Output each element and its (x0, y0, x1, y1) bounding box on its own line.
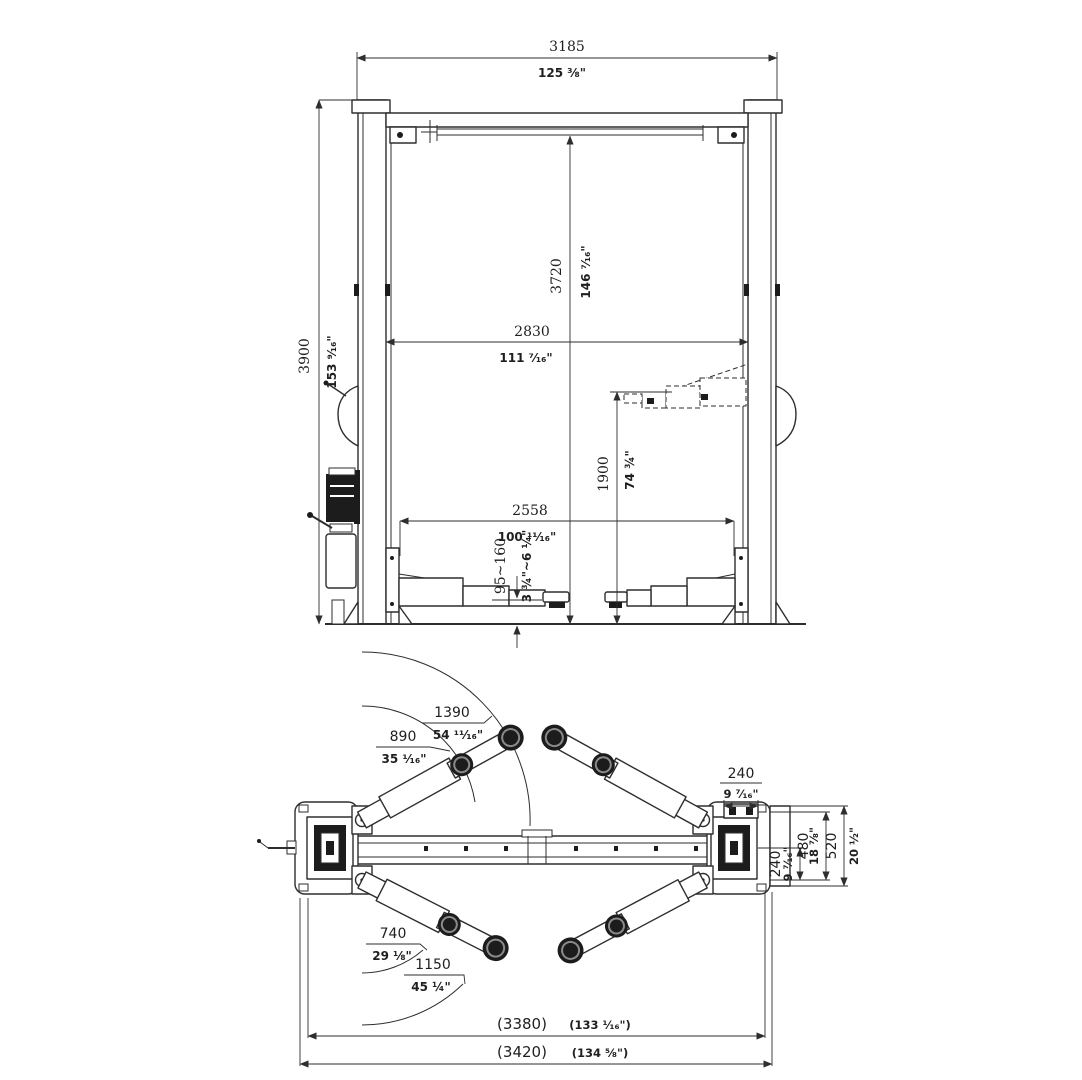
dim-240-side-in: 9 ⁷⁄₁₆" (781, 846, 795, 881)
front-view: 3185 125 ⅜" 3900 153 ⁹⁄₁₆" 3720 146 ⁷⁄₁₆… (297, 39, 806, 648)
power-unit (307, 468, 360, 588)
beam-joint-plate (522, 830, 552, 837)
dim-3185-in: 125 ⅜" (538, 66, 586, 80)
dim-3380-in: (133 ¹⁄₁₆") (569, 1018, 631, 1032)
anchor-bolt (729, 807, 736, 815)
dim-3900-in: 153 ⁹⁄₁₆" (325, 335, 339, 388)
beam-bolt (504, 846, 508, 851)
dim-overall-inner: (3380) (133 ¹⁄₁₆") (308, 892, 765, 1038)
carriage-pin (390, 556, 394, 560)
drawing-page: 3185 125 ⅜" 3900 153 ⁹⁄₁₆" 3720 146 ⁷⁄₁₆… (0, 0, 1082, 1080)
dim-3720-in: 146 ⁷⁄₁₆" (579, 245, 593, 298)
beam-bolt (654, 846, 658, 851)
right-column-cap (744, 100, 782, 113)
dim-3420-mm: (3420) (497, 1043, 547, 1061)
dim-520-mm: 520 (824, 833, 840, 860)
base-wedge (722, 606, 735, 624)
base-wedge (344, 602, 358, 624)
dim-95-160-in: 3 ¾"~6 ¼" (520, 530, 534, 602)
dim-1150-in: 45 ¼" (411, 980, 451, 994)
lock-cover-left (338, 386, 358, 446)
arm-pad (543, 592, 569, 602)
dim-clearance-height: 3720 146 ⁷⁄₁₆" (549, 136, 593, 624)
oil-tank (326, 534, 356, 588)
base-wedge (399, 606, 412, 624)
motor (326, 474, 358, 522)
joint-bolt (775, 284, 780, 296)
handle-knob (307, 512, 313, 518)
dim-240-top-in: 9 ⁷⁄₁₆" (723, 787, 758, 801)
motor-cap (329, 468, 355, 475)
plan-view: 1390 54 ¹¹⁄₁₆" 890 35 ¹⁄₁₆" 740 29 ⅛" 11… (257, 652, 861, 1066)
joint-bolt (744, 284, 749, 296)
dim-890-in: 35 ¹⁄₁₆" (382, 752, 427, 766)
top-beam (386, 113, 748, 127)
dim-overall-outer: (3420) (134 ⅝") (300, 892, 772, 1066)
dim-520-in: 20 ½" (847, 827, 861, 865)
dim-drive-through: 2558 100 ¹¹⁄₁₆" (400, 503, 734, 556)
gusset-bolt-left (397, 132, 403, 138)
arm-pad-foot (549, 602, 565, 608)
joint-bolt (354, 284, 359, 296)
dim-480-in: 18 ⅞" (807, 827, 821, 865)
right-arm-stowed (605, 574, 735, 608)
carriage-pin (739, 602, 743, 606)
dim-3185-mm: 3185 (549, 39, 585, 55)
dim-2830-mm: 2830 (514, 324, 550, 340)
left-column (358, 100, 386, 624)
dim-1390-mm: 1390 (434, 705, 470, 721)
left-column-cap (352, 100, 390, 113)
gusset-bolt-right (731, 132, 737, 138)
callout-rear-arm-extended: 1150 45 ¼" (404, 957, 465, 994)
raised-arm-phantom (624, 364, 748, 408)
dim-overall-width: 3185 125 ⅜" (357, 39, 777, 100)
lock-cover-right (776, 386, 796, 446)
dim-2830-in: 111 ⁷⁄₁₆" (499, 351, 552, 365)
dim-3420-in: (134 ⅝") (572, 1046, 628, 1060)
dim-3720-mm: 3720 (549, 258, 565, 294)
right-column (748, 100, 776, 624)
carriage-pin (390, 602, 394, 606)
beam-bolt (464, 846, 468, 851)
arm-rear-right (553, 869, 709, 968)
left-base-plate (257, 802, 372, 894)
dim-3380-mm: (3380) (497, 1015, 547, 1033)
overhead-safety-bar (437, 129, 703, 135)
dim-890-mm: 890 (390, 729, 417, 745)
beam-bolt (694, 846, 698, 851)
joint-bolt (385, 284, 390, 296)
dim-1150-mm: 1150 (415, 957, 451, 973)
arm-front-right (537, 720, 710, 831)
carriage-pin (739, 556, 743, 560)
valve-block (330, 524, 352, 532)
arm-pad (605, 592, 627, 602)
crossbeam (345, 830, 740, 864)
arm-pad-foot (609, 602, 622, 608)
base-wedge (776, 602, 790, 624)
dim-between-columns: 2830 111 ⁷⁄₁₆" (386, 324, 748, 365)
dim-3900-mm: 3900 (297, 338, 313, 374)
dim-95-160-mm: 95~160 (493, 538, 509, 594)
callout-front-arm-extended: 1390 54 ¹¹⁄₁₆" (422, 705, 492, 742)
anchor-bolt (746, 807, 753, 815)
dim-740-in: 29 ⅛" (372, 949, 412, 963)
dim-1390-in: 54 ¹¹⁄₁₆" (433, 728, 483, 742)
dim-1900-in: 74 ¾" (623, 450, 637, 490)
two-post-lift-technical-drawing: 3185 125 ⅜" 3900 153 ⁹⁄₁₆" 3720 146 ⁷⁄₁₆… (0, 0, 1082, 1080)
dim-pad-height: 95~160 3 ¾"~6 ¼" (492, 530, 542, 648)
beam-bolt (424, 846, 428, 851)
dim-740-mm: 740 (380, 926, 407, 942)
floor-box (332, 600, 344, 624)
beam-bolt (574, 846, 578, 851)
dim-2558-mm: 2558 (512, 503, 548, 519)
dim-240-top-mm: 240 (728, 766, 755, 782)
phantom-pad (624, 394, 642, 403)
dim-1900-mm: 1900 (596, 456, 612, 492)
left-arm-stowed (399, 574, 569, 608)
beam-bolt (614, 846, 618, 851)
